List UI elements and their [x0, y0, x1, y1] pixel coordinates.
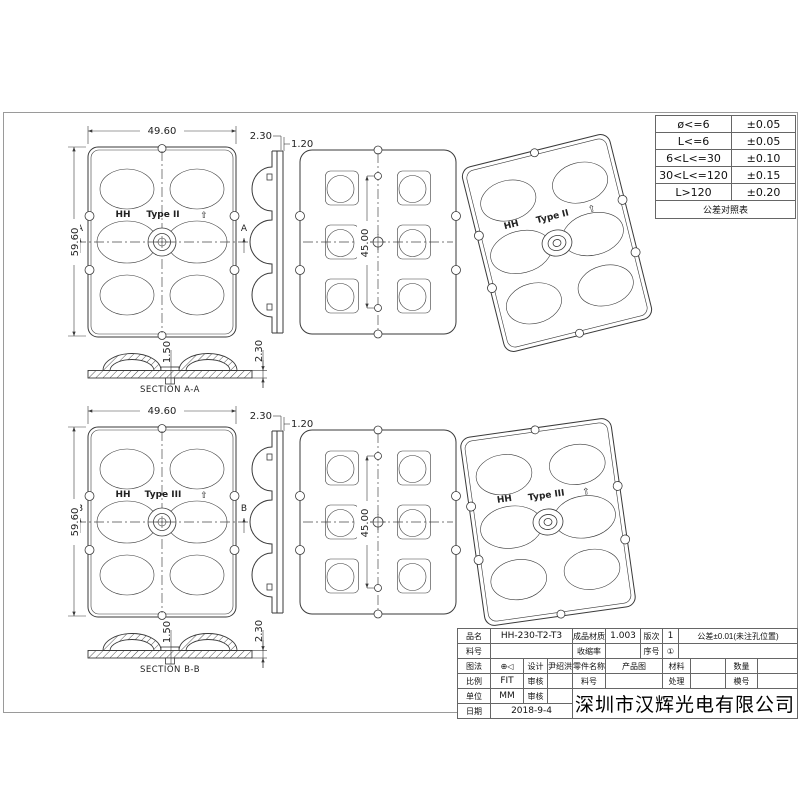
treatment-value: [691, 674, 726, 689]
projection-label: 图法: [458, 659, 491, 674]
seq-value: ①: [663, 644, 679, 659]
table-row: 比例 FIT 审核 料号 处理 模号: [458, 674, 798, 689]
empty-cell: [679, 644, 798, 659]
date-label: 日期: [458, 704, 491, 719]
stock-label: 料号: [458, 644, 491, 659]
part-number: HH-230-T2-T3: [491, 629, 573, 644]
direction-arrow-icon: ⇧: [200, 491, 208, 501]
dim-center-height: 1.50: [162, 621, 173, 643]
plan-view: [296, 146, 461, 338]
tol-value: ±0.05: [732, 116, 796, 133]
material-value: 1.003: [606, 629, 641, 644]
mold-label: 模号: [726, 674, 758, 689]
mold-value: [758, 674, 798, 689]
tol-range: 6<L<=30: [656, 150, 732, 167]
tolerance-table-caption: 公差对照表: [656, 201, 796, 219]
tol-range: L>120: [656, 184, 732, 201]
table-row: 单位 MM 审核 深圳市汉辉光电有限公司: [458, 689, 798, 704]
qty-value: [758, 659, 798, 674]
brand-label: HH: [496, 494, 512, 506]
table-row: ø<=6 ±0.05: [656, 116, 796, 133]
tol-value: ±0.05: [732, 133, 796, 150]
side-view: [250, 151, 283, 333]
stock-value: [491, 644, 573, 659]
tolerance-note: 公差±0.01(未注孔位置): [679, 629, 798, 644]
tol-value: ±0.20: [732, 184, 796, 201]
dim-thickness: 2.30: [250, 411, 272, 422]
tol-range: 30<L<=120: [656, 167, 732, 184]
table-row: 品名 HH-230-T2-T3 成品材质 1.003 版次 1 公差±0.01(…: [458, 629, 798, 644]
plan-view: [296, 426, 461, 618]
section-letter: B: [241, 504, 247, 514]
scale-label: 比例: [458, 674, 491, 689]
treatment-label: 处理: [663, 674, 691, 689]
material2-value: [691, 659, 726, 674]
brand-label: HH: [115, 210, 130, 220]
dim-pitch: 45.00: [360, 509, 371, 538]
type-label: Type III: [145, 490, 182, 500]
part-name-label: 品名: [458, 629, 491, 644]
dim-total-height: 2.30: [254, 620, 265, 642]
unit-label: 单位: [458, 689, 491, 704]
shrink-label: 收缩率: [573, 644, 606, 659]
shrink-value: [606, 644, 641, 659]
check-value: [548, 689, 573, 704]
material2-label: 材料: [663, 659, 691, 674]
company-name: 深圳市汉辉光电有限公司: [573, 689, 798, 719]
table-row: L<=6 ±0.05: [656, 133, 796, 150]
section-label: SECTION A-A: [140, 385, 200, 395]
dim-width: 49.60: [148, 126, 177, 137]
brand-label: HH: [115, 490, 130, 500]
dim-center-height: 1.50: [162, 341, 173, 363]
scale-value: FIT: [491, 674, 524, 689]
table-row: 图法 ⊕◁ 设计 尹绍洪 零件名称 产品图 材料 数量: [458, 659, 798, 674]
table-row: L>120 ±0.20: [656, 184, 796, 201]
table-row: 公差对照表: [656, 201, 796, 219]
row-type2: A A 49.60 59.60 HH Type II ⇧ 2.30 1.20: [67, 124, 657, 395]
designer-name: 尹绍洪: [548, 659, 573, 674]
dim-flange: 1.20: [291, 419, 313, 430]
component-label: 零件名称: [573, 659, 606, 674]
check-value: [548, 674, 573, 689]
tol-range: L<=6: [656, 133, 732, 150]
dim-width: 49.60: [148, 406, 177, 417]
date-value: 2018-9-4: [491, 704, 573, 719]
tol-value: ±0.10: [732, 150, 796, 167]
side-view: [250, 431, 283, 613]
section-label: SECTION B-B: [140, 665, 200, 675]
check-label: 审核: [524, 674, 548, 689]
title-block: 品名 HH-230-T2-T3 成品材质 1.003 版次 1 公差±0.01(…: [457, 628, 798, 719]
dim-total-height: 2.30: [254, 340, 265, 362]
section-letter: A: [241, 224, 248, 234]
drawing-sheet: A A 49.60 59.60 HH Type II ⇧ 2.30 1.20: [0, 0, 800, 800]
stock2-label: 料号: [573, 674, 606, 689]
rev-value: 1: [663, 629, 679, 644]
design-label: 设计: [524, 659, 548, 674]
rev-label: 版次: [641, 629, 663, 644]
section-view: [88, 350, 267, 388]
qty-label: 数量: [726, 659, 758, 674]
dim-flange: 1.20: [291, 139, 313, 150]
seq-label: 序号: [641, 644, 663, 659]
stock2-value: [606, 674, 663, 689]
dim-height: 59.60: [70, 508, 81, 537]
tol-range: ø<=6: [656, 116, 732, 133]
direction-arrow-icon: ⇧: [200, 211, 208, 221]
table-row: 6<L<=30 ±0.10: [656, 150, 796, 167]
table-row: 30<L<=120 ±0.15: [656, 167, 796, 184]
dim-pitch: 45.00: [360, 229, 371, 258]
tol-value: ±0.15: [732, 167, 796, 184]
table-row: 料号 收缩率 序号 ①: [458, 644, 798, 659]
section-view: [88, 630, 267, 668]
material-label: 成品材质: [573, 629, 606, 644]
dim-thickness: 2.30: [250, 131, 272, 142]
check-label: 审核: [524, 689, 548, 704]
component-value: 产品图: [606, 659, 663, 674]
unit-value: MM: [491, 689, 524, 704]
direction-arrow-icon: ⇧: [582, 487, 591, 498]
iso-view: HH Type II ⇧: [457, 130, 656, 356]
projection-symbols-icon: ⊕◁: [491, 659, 524, 674]
type-label: Type II: [146, 210, 179, 220]
dim-height: 59.60: [70, 228, 81, 257]
tolerance-table: ø<=6 ±0.05 L<=6 ±0.05 6<L<=30 ±0.10 30<L…: [655, 115, 796, 219]
iso-view: HH Type III ⇧: [457, 415, 639, 629]
